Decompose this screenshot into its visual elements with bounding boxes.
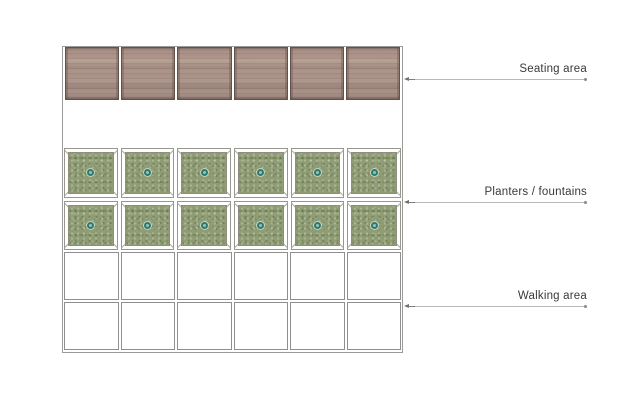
planter-soil [238,205,284,247]
planter-soil [238,152,284,194]
walking-area-grid [63,251,402,351]
walking-cell [177,302,232,350]
planter-cell [177,201,231,251]
planter-cell [347,201,401,251]
walking-cell [121,302,176,350]
seating-panel [65,47,119,100]
fountain-icon [201,222,208,229]
planter-soil [68,152,114,194]
walking-cell [290,252,345,300]
fountain-icon [144,222,151,229]
fountain-icon [87,169,94,176]
seating-area [63,47,402,100]
planter-soil [68,205,114,247]
walking-cell [234,252,289,300]
annotation-label-seating: Seating area [519,63,587,76]
seating-panel [234,47,288,100]
leader-dot [584,305,587,308]
leader-dash [408,306,415,307]
planter-cell [64,148,118,198]
planter-cell [234,148,288,198]
leader-line-seating [406,79,586,80]
plan-diagram-canvas: Seating area Planters / fountains Walkin… [0,0,620,413]
leader-dot [584,78,587,81]
planter-soil [181,152,227,194]
fountain-icon [257,222,264,229]
fountain-icon [314,222,321,229]
open-deck-gap [63,100,402,147]
planter-soil [181,205,227,247]
walking-cell [347,252,402,300]
fountain-icon [371,169,378,176]
leader-line-walking [406,306,586,307]
fountain-icon [87,222,94,229]
walking-cell [347,302,402,350]
planter-soil [125,205,171,247]
seating-panel [177,47,231,100]
walking-cell [64,252,119,300]
courtyard-plan [62,46,403,353]
fountain-icon [314,169,321,176]
leader-dash [408,79,415,80]
walking-cell [64,302,119,350]
planter-cell [64,201,118,251]
leader-dash [408,202,415,203]
planter-soil [295,152,341,194]
walking-cell [234,302,289,350]
fountain-icon [371,222,378,229]
planter-cell [121,148,175,198]
planter-cell [347,148,401,198]
leader-dot [584,201,587,204]
walking-cell [121,252,176,300]
planter-soil [351,205,397,247]
planter-cell [291,148,345,198]
planter-soil [295,205,341,247]
seating-panel [290,47,344,100]
annotation-label-walking: Walking area [518,290,587,303]
planter-cell [121,201,175,251]
walking-cell [177,252,232,300]
walking-cell [290,302,345,350]
fountain-icon [144,169,151,176]
planter-cell [177,148,231,198]
planter-soil [125,152,171,194]
planter-soil [351,152,397,194]
annotation-label-planters: Planters / fountains [485,186,587,199]
seating-panel [121,47,175,100]
planter-cell [291,201,345,251]
planter-cell [234,201,288,251]
fountain-icon [257,169,264,176]
leader-line-planters [406,202,586,203]
fountain-icon [201,169,208,176]
planters-grid [63,147,402,251]
seating-panel [346,47,400,100]
